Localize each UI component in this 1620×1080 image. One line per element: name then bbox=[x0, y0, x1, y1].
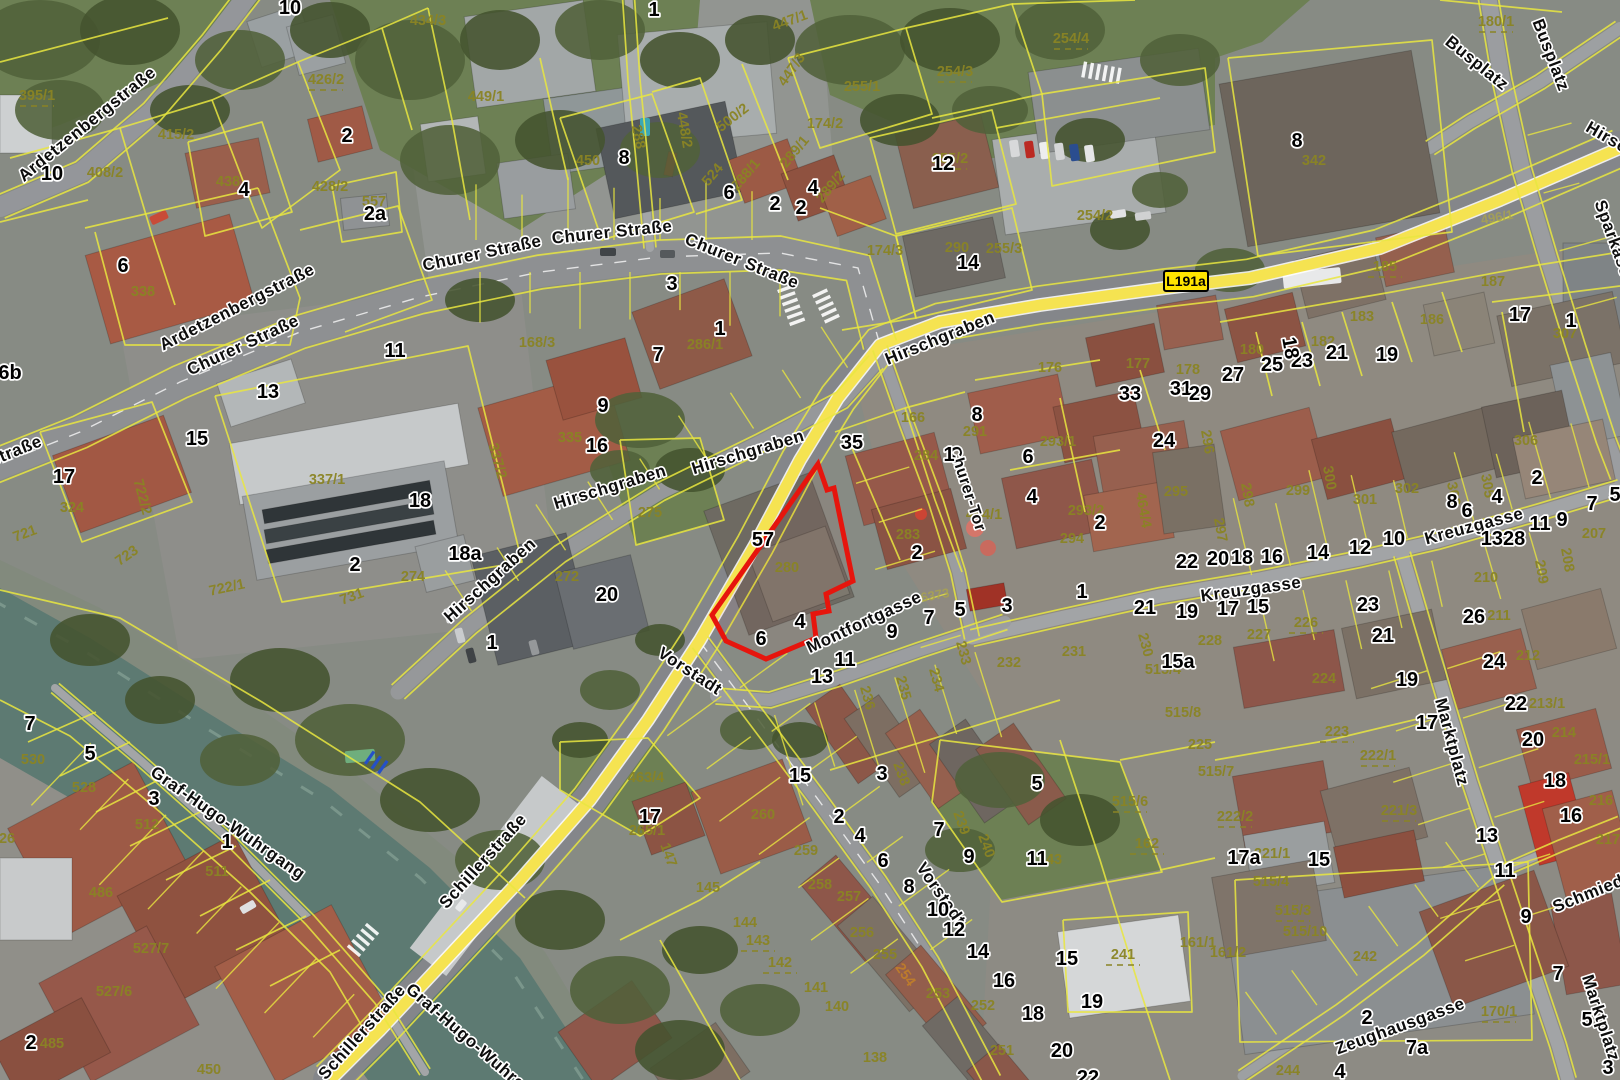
parcel-number-label: 302 bbox=[1395, 481, 1419, 497]
house-number-label: 7 bbox=[923, 607, 934, 629]
parcel-number-label: 256 bbox=[850, 925, 874, 941]
house-number-label: 8 bbox=[618, 147, 629, 169]
house-number-label: 24 bbox=[1153, 430, 1176, 452]
house-number-label: 4 bbox=[854, 825, 866, 847]
tree bbox=[795, 15, 905, 85]
parcel-number-label: 211 bbox=[1487, 608, 1510, 624]
parcel-number-label: 183 bbox=[1350, 309, 1374, 325]
parcel-number-label: 178 bbox=[1176, 362, 1200, 378]
house-number-label: 35 bbox=[841, 432, 863, 454]
parcel-number-label: 335 bbox=[558, 430, 582, 446]
house-number-label: 13 bbox=[257, 381, 279, 403]
tree bbox=[1132, 172, 1188, 208]
tree bbox=[200, 734, 280, 786]
house-number-label: 5 bbox=[1031, 773, 1042, 795]
parcel-number-label: 216 bbox=[1589, 793, 1613, 809]
parcel-number-label: 280 bbox=[775, 560, 799, 576]
house-number-label: 2 bbox=[341, 125, 352, 147]
house-number-label: 12 bbox=[932, 153, 954, 175]
tree bbox=[570, 956, 670, 1024]
parcel-number-label: 527/6 bbox=[96, 984, 132, 1000]
house-number-label: 2 bbox=[911, 542, 922, 564]
parcel-number-label: 241 bbox=[1111, 947, 1135, 963]
house-number-label: 10 bbox=[1383, 528, 1405, 550]
house-number-label: 3 bbox=[666, 273, 677, 295]
house-number-label: 16 bbox=[993, 970, 1015, 992]
map-viewport: 395/1415/2408/2426/2438428/2434/3449/133… bbox=[0, 0, 1620, 1080]
parcel-number-label: 515/3 bbox=[1275, 903, 1311, 919]
parcel-number-label: 222/2 bbox=[1217, 809, 1253, 825]
house-number-label: 7a bbox=[1406, 1037, 1429, 1059]
house-number-label: 14 bbox=[957, 252, 980, 274]
tree bbox=[1140, 34, 1220, 86]
parcel-number-label: 463/4 bbox=[628, 770, 664, 786]
tree bbox=[195, 30, 285, 90]
parcel-number-label: 528 bbox=[72, 780, 96, 796]
house-number-label: 29 bbox=[1189, 383, 1211, 405]
house-number-label: 3 bbox=[1001, 595, 1012, 617]
parcel-number-label: 210 bbox=[1474, 570, 1498, 586]
parcel-number-label: 252 bbox=[971, 998, 995, 1014]
house-number-label: 4 bbox=[1026, 486, 1038, 508]
parcel-number-label: 272 bbox=[555, 569, 579, 585]
house-number-label: 19 bbox=[1081, 991, 1103, 1013]
parcel-number-label: 254/4 bbox=[1053, 31, 1089, 47]
house-number-label: 17 bbox=[53, 466, 75, 488]
house-number-label: 21 bbox=[1134, 597, 1156, 619]
parcel-number-label: 145 bbox=[696, 880, 720, 896]
house-number-label: 4 bbox=[794, 611, 806, 633]
house-number-label: 9 bbox=[963, 846, 974, 868]
house-number-label: 2 bbox=[349, 554, 360, 576]
house-number-label: 11 bbox=[1494, 860, 1515, 882]
house-number-label: 6 bbox=[755, 628, 766, 650]
house-number-label: 15 bbox=[1247, 596, 1269, 618]
house-number-label: 10 bbox=[41, 163, 63, 185]
parcel-number-label: 324 bbox=[60, 500, 84, 516]
house-number-label: 3 bbox=[148, 788, 159, 810]
house-number-label: 14 bbox=[967, 941, 990, 963]
house-number-label: 15 bbox=[186, 428, 208, 450]
house-number-label: 22 bbox=[1176, 551, 1198, 573]
roof-detail bbox=[980, 540, 996, 556]
house-number-label: 12 bbox=[1349, 537, 1371, 559]
tree bbox=[125, 676, 195, 724]
parcel-number-label: 257 bbox=[837, 889, 861, 905]
parcel-number-label: 527/7 bbox=[133, 941, 169, 957]
parcel-number-label: 530 bbox=[21, 752, 45, 768]
house-number-label: 23 bbox=[1357, 594, 1379, 616]
house-number-label: 21 bbox=[1326, 342, 1348, 364]
house-number-label: 3 bbox=[876, 763, 887, 785]
house-number-label: 8 bbox=[903, 876, 914, 898]
parcel-number-label: 306 bbox=[1514, 433, 1538, 449]
house-number-label: 1 bbox=[1565, 310, 1576, 332]
house-number-label: 33 bbox=[1119, 383, 1141, 405]
parcel-number-label: 255 bbox=[873, 947, 897, 963]
parcel-number-label: 515/4 bbox=[1253, 874, 1289, 890]
parcel-number-label: 26 bbox=[0, 831, 15, 847]
house-number-label: 7 bbox=[652, 344, 663, 366]
house-number-label: 4 bbox=[1491, 486, 1503, 508]
house-number-label: 17 bbox=[1416, 712, 1438, 734]
parcel-number-label: 212 bbox=[1516, 648, 1540, 664]
house-number-label: 18 bbox=[1544, 770, 1566, 792]
tree bbox=[50, 614, 130, 666]
route-badge-l191a: L191a bbox=[1163, 270, 1209, 292]
parcel-number-label: 274 bbox=[401, 569, 425, 585]
parcel-number-label: 213/1 bbox=[1529, 696, 1565, 712]
tree bbox=[380, 768, 480, 832]
house-number-label: 10 bbox=[279, 0, 301, 19]
parcel-number-label: 207 bbox=[1582, 526, 1606, 542]
parcel-number-label: 174/3 bbox=[867, 243, 903, 259]
parcel-number-label: 227 bbox=[1247, 627, 1271, 643]
parcel-number-label: 186 bbox=[1420, 312, 1444, 328]
parcel-number-label: 434/3 bbox=[410, 13, 446, 29]
parcel-number-label: 242 bbox=[1353, 949, 1377, 965]
parcel-number-label: 215/1 bbox=[1574, 752, 1610, 768]
house-number-label: 6b bbox=[0, 362, 22, 384]
parcel-number-label: 283 bbox=[896, 527, 920, 543]
house-number-label: 16 bbox=[1261, 546, 1283, 568]
house-number-label: 18 bbox=[409, 490, 431, 512]
parcel-number-label: 450 bbox=[576, 153, 600, 169]
house-number-label: 14 bbox=[1307, 542, 1330, 564]
parcel-number-label: 255/1 bbox=[844, 79, 880, 95]
house-number-label: 15 bbox=[1308, 849, 1330, 871]
house-number-label: 2 bbox=[1531, 467, 1542, 489]
house-number-label: 4 bbox=[807, 177, 819, 199]
house-number-label: 2 bbox=[25, 1032, 36, 1054]
house-number-label: 1 bbox=[486, 632, 497, 654]
tree bbox=[720, 710, 780, 750]
parcel-number-label: 515/10 bbox=[1283, 924, 1327, 940]
parcel-number-label: 515/7 bbox=[1198, 764, 1234, 780]
house-number-label: 15 bbox=[789, 765, 811, 787]
house-number-label: 9 bbox=[1520, 906, 1531, 928]
house-number-label: 7 bbox=[24, 713, 35, 735]
house-number-label: 17 bbox=[1217, 598, 1239, 620]
parcel-number-label: 254/3 bbox=[937, 64, 973, 80]
tree bbox=[640, 32, 720, 88]
house-number-label: 18a bbox=[448, 543, 482, 565]
house-number-label: 16 bbox=[1560, 805, 1582, 827]
house-number-label: 11 bbox=[834, 649, 855, 671]
parcel-number-label: 449/1 bbox=[468, 89, 504, 105]
parcel-number-label: 259 bbox=[794, 843, 818, 859]
house-number-label: 21 bbox=[1372, 625, 1394, 647]
house-number-label: 4 bbox=[1334, 1061, 1346, 1080]
parcel-number-label: 408/2 bbox=[87, 165, 123, 181]
house-number-label: 5 bbox=[954, 599, 965, 621]
parcel-number-label: 221/3 bbox=[1381, 803, 1417, 819]
house-number-label: 15a bbox=[1161, 651, 1195, 673]
parcel-number-label: 166 bbox=[901, 410, 925, 426]
parcel-number-label: 275 bbox=[638, 505, 662, 521]
tree bbox=[230, 648, 330, 712]
house-number-label: 19 bbox=[1396, 669, 1418, 691]
house-number-label: 11 bbox=[1026, 848, 1047, 870]
parcel-number-label: 222/1 bbox=[1360, 748, 1396, 764]
house-number-label: 17a bbox=[1227, 847, 1261, 869]
parcel-number-label: 231 bbox=[1062, 644, 1086, 660]
parcel-number-label: 395/1 bbox=[19, 88, 55, 104]
parcel-number-label: 342 bbox=[1302, 153, 1326, 169]
tree bbox=[400, 125, 500, 195]
house-number-label: 17 bbox=[639, 806, 661, 828]
house-number-label: 18 bbox=[1231, 547, 1253, 569]
tree bbox=[772, 722, 828, 758]
house-number-label: 5 bbox=[1581, 1009, 1592, 1031]
house-number-label: 1 bbox=[714, 318, 725, 340]
parcel-number-label: 450 bbox=[197, 1062, 221, 1078]
house-number-label: 5 bbox=[1609, 484, 1620, 506]
house-number-label: 20 bbox=[1207, 548, 1229, 570]
vehicle bbox=[600, 248, 616, 256]
house-number-label: 2 bbox=[1361, 1007, 1372, 1029]
building bbox=[0, 858, 72, 940]
parcel-number-label: 187 bbox=[1481, 274, 1505, 290]
parcel-number-label: 142 bbox=[768, 955, 792, 971]
house-number-label: 22 bbox=[1505, 693, 1527, 715]
house-number-label: 6 bbox=[1022, 446, 1033, 468]
parcel-number-label: 254/2 bbox=[1077, 208, 1113, 224]
parcel-number-label: 161/2 bbox=[1210, 945, 1246, 961]
parcel-number-label: 228 bbox=[1198, 633, 1222, 649]
house-number-label: 18 bbox=[1277, 335, 1303, 361]
house-number-label: 9 bbox=[886, 621, 897, 643]
house-number-label: 2a bbox=[364, 203, 387, 225]
vehicle bbox=[660, 250, 675, 258]
house-number-label: 6 bbox=[877, 850, 888, 872]
parcel-number-label: 486 bbox=[89, 885, 113, 901]
house-number-label: 12 bbox=[943, 919, 965, 941]
house-number-label: 26 bbox=[1463, 606, 1485, 628]
house-number-label: 10 bbox=[927, 899, 949, 921]
parcel-number-label: 260 bbox=[751, 807, 775, 823]
tree bbox=[460, 10, 540, 70]
house-number-label: 17 bbox=[1509, 304, 1531, 326]
parcel-number-label: 415/2 bbox=[158, 127, 194, 143]
house-number-label: 3 bbox=[1602, 1057, 1613, 1079]
parcel-number-label: 291 bbox=[963, 424, 987, 440]
parcel-number-label: 162 bbox=[1135, 836, 1159, 852]
parcel-number-label: 225 bbox=[1188, 737, 1212, 753]
parcel-number-label: 485 bbox=[40, 1036, 64, 1052]
house-number-label: 2 bbox=[1094, 512, 1105, 534]
parcel-number-label: 294 bbox=[1060, 531, 1084, 547]
house-number-label: 6 bbox=[1461, 500, 1472, 522]
house-number-label: 1 bbox=[648, 0, 659, 21]
parcel-number-label: 223 bbox=[1325, 724, 1349, 740]
house-number-label: 19 bbox=[1176, 601, 1198, 623]
parcel-number-label: 138 bbox=[863, 1050, 887, 1066]
house-number-label: 9 bbox=[1556, 509, 1567, 531]
house-number-label: 8 bbox=[1446, 491, 1457, 513]
house-number-label: 6 bbox=[723, 182, 734, 204]
parcel-number-label: 217 bbox=[1596, 832, 1620, 848]
parcel-number-label: 170/1 bbox=[1481, 1004, 1517, 1020]
tree bbox=[720, 984, 800, 1036]
parcel-number-label: 301 bbox=[1353, 492, 1377, 508]
parcel-number-label: 512 bbox=[135, 817, 159, 833]
parcel-number-label: 140 bbox=[825, 999, 849, 1015]
house-number-label: 13 bbox=[1476, 825, 1498, 847]
parcel-number-label: 176 bbox=[1038, 360, 1062, 376]
parcel-number-label: 143 bbox=[746, 933, 770, 949]
parcel-number-label: 141 bbox=[804, 980, 828, 996]
parcel-number-label: 338 bbox=[131, 284, 155, 300]
house-number-label: 20 bbox=[1051, 1040, 1073, 1062]
house-number-label: 22 bbox=[1077, 1067, 1099, 1080]
house-number-label: 18 bbox=[1022, 1003, 1044, 1025]
parcel-number-label: 515/8 bbox=[1165, 705, 1201, 721]
tree bbox=[555, 0, 645, 60]
house-number-label: 15 bbox=[1056, 948, 1078, 970]
parcel-number-label: 253 bbox=[926, 986, 950, 1002]
parcel-number-label: 438 bbox=[216, 174, 240, 190]
house-number-label: 7 bbox=[1552, 963, 1563, 985]
house-number-label: 11 bbox=[384, 340, 405, 362]
tree bbox=[662, 926, 738, 974]
house-number-label: 19 bbox=[1376, 344, 1398, 366]
parcel-number-label: 258 bbox=[808, 877, 832, 893]
house-number-label: 1 bbox=[1076, 581, 1087, 603]
parcel-number-label: 177 bbox=[1126, 356, 1150, 372]
house-number-label: 2 bbox=[833, 806, 844, 828]
parcel-number-label: 295 bbox=[1164, 484, 1188, 500]
house-number-label: 11 bbox=[1529, 513, 1550, 535]
house-number-label: 24 bbox=[1483, 651, 1506, 673]
house-number-label: 1 bbox=[221, 831, 232, 853]
house-number-label: 13 bbox=[811, 666, 833, 688]
parcel-number-label: 251 bbox=[990, 1043, 1014, 1059]
house-number-label: 20 bbox=[596, 584, 618, 606]
house-number-label: 16 bbox=[586, 435, 608, 457]
parcel-number-label: 214 bbox=[1552, 725, 1576, 741]
parcel-number-label: 232 bbox=[997, 655, 1021, 671]
parcel-number-label: 144 bbox=[733, 915, 757, 931]
parcel-number-label: 426/2 bbox=[308, 72, 344, 88]
tree bbox=[580, 670, 640, 710]
parcel-number-label: 174/2 bbox=[807, 116, 843, 132]
house-number-label: 20 bbox=[1522, 729, 1544, 751]
parcel-number-label: 168/3 bbox=[519, 335, 555, 351]
house-number-label: 4 bbox=[238, 179, 250, 201]
parcel-number-label: 185 bbox=[1373, 259, 1397, 275]
parcel-number-label: 284 bbox=[914, 448, 938, 464]
parcel-number-label: 224 bbox=[1312, 671, 1336, 687]
parcel-number-label: 511 bbox=[205, 864, 228, 880]
house-number-label: 8 bbox=[1291, 130, 1302, 152]
parcel-number-label: 226 bbox=[1294, 615, 1318, 631]
parcel-number-label: 428/2 bbox=[312, 179, 348, 195]
parcel-number-label: 255/3 bbox=[986, 241, 1022, 257]
house-number-label: 1 bbox=[943, 444, 954, 466]
house-number-label: 8 bbox=[971, 404, 982, 426]
map-canvas[interactable]: 395/1415/2408/2426/2438428/2434/3449/133… bbox=[0, 0, 1620, 1080]
house-number-label: 7 bbox=[933, 819, 944, 841]
parcel-number-label: 244 bbox=[1276, 1063, 1300, 1079]
house-number-label: 1328 bbox=[1481, 528, 1526, 550]
house-number-label: 2 bbox=[795, 197, 806, 219]
house-number-label: 25 bbox=[1261, 354, 1283, 376]
house-number-label: 27 bbox=[1222, 364, 1244, 386]
house-number-label: 57 bbox=[752, 529, 774, 551]
parcel-number-label: 515/6 bbox=[1112, 794, 1148, 810]
house-number-label: 6 bbox=[117, 255, 128, 277]
house-number-label: 9 bbox=[597, 395, 608, 417]
house-number-label: 7 bbox=[1586, 493, 1597, 515]
parcel-number-label: 299 bbox=[1286, 483, 1310, 499]
parcel-number-label: 180/1 bbox=[1478, 14, 1514, 30]
parcel-number-label: 337/1 bbox=[309, 472, 345, 488]
house-number-label: 2 bbox=[769, 193, 780, 215]
house-number-label: 5 bbox=[84, 743, 95, 765]
parcel-number-label: 293/1 bbox=[1040, 434, 1076, 450]
